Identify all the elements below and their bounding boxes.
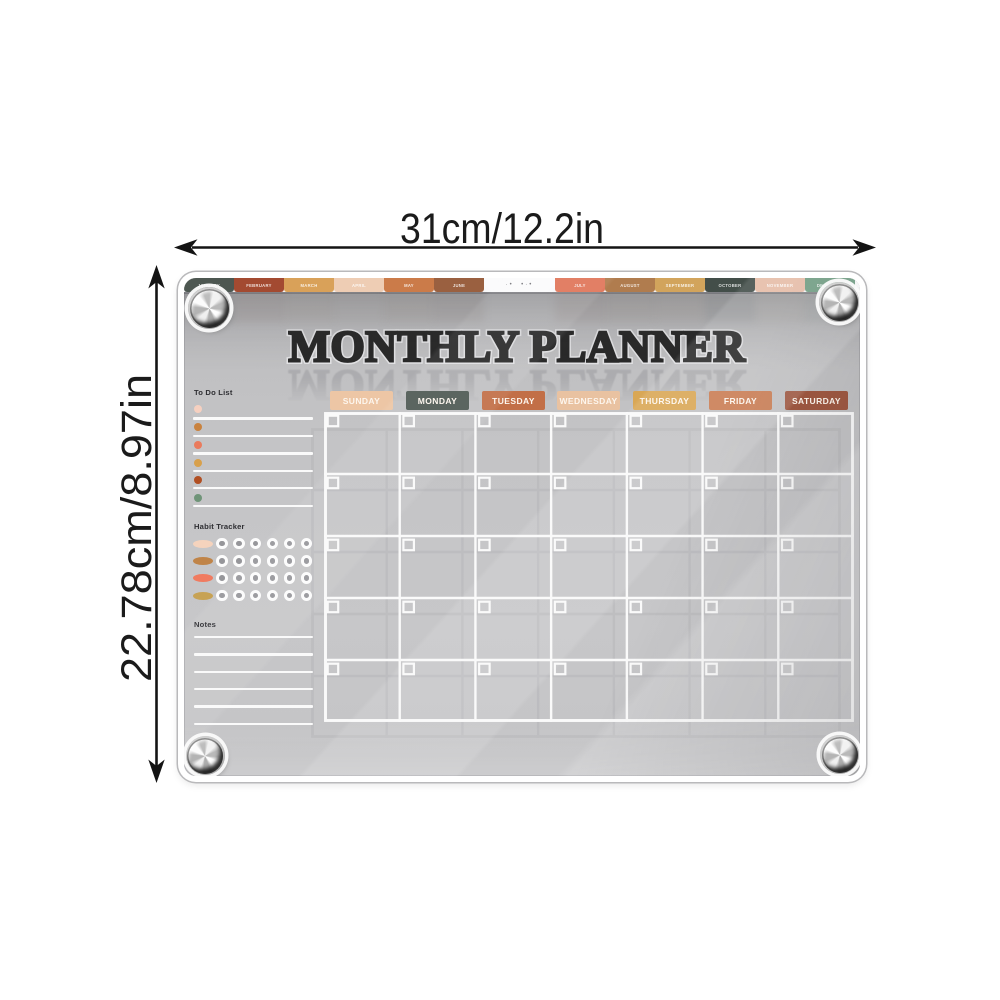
svg-text:31cm/12.2in: 31cm/12.2in — [400, 205, 604, 253]
svg-text:22.78cm/8.97in: 22.78cm/8.97in — [113, 374, 161, 682]
